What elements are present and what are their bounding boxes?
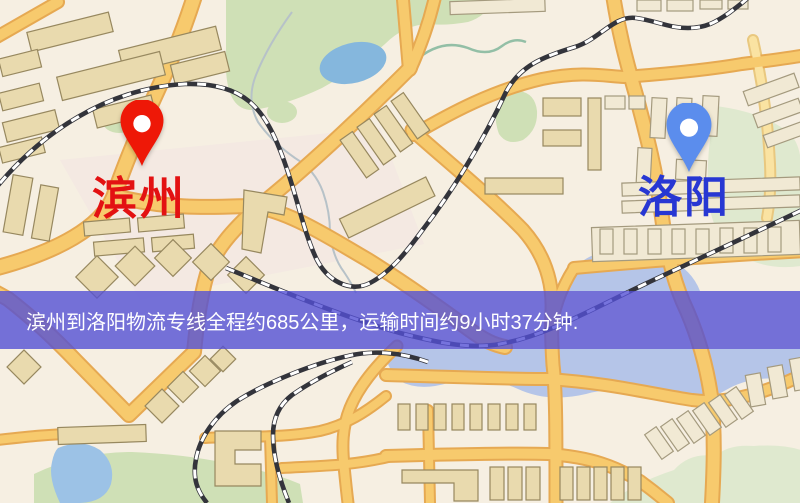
route-info-banner: 滨州到洛阳物流专线全程约685公里，运输时间约9小时37分钟.	[0, 291, 800, 349]
destination-city-label: 洛阳	[638, 176, 730, 220]
pin-hole	[133, 115, 150, 132]
pin-hole	[680, 119, 698, 137]
map-view: 滨州 洛阳 滨州到洛阳物流专线全程约685公里，运输时间约9小时37分钟.	[0, 0, 800, 503]
red-pin-icon	[121, 100, 164, 166]
blue-pin-icon	[667, 103, 712, 172]
origin-marker[interactable]	[119, 100, 165, 167]
map-background	[0, 0, 800, 503]
origin-city-label: 滨州	[92, 176, 186, 221]
destination-marker[interactable]	[665, 103, 713, 173]
route-info-text: 滨州到洛阳物流专线全程约685公里，运输时间约9小时37分钟.	[0, 306, 578, 335]
